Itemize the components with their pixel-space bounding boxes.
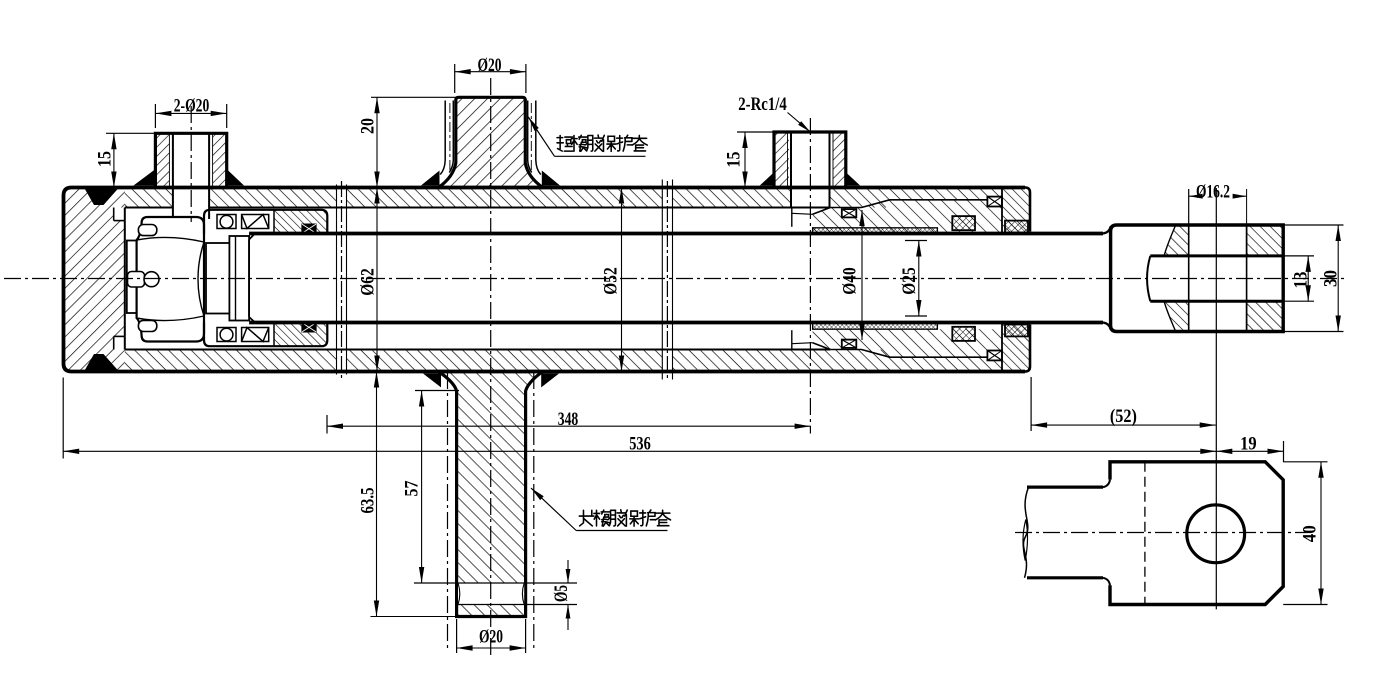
svg-text:Ø25: Ø25 xyxy=(899,267,920,295)
svg-text:15: 15 xyxy=(95,151,116,167)
svg-text:2-Rc1/4: 2-Rc1/4 xyxy=(738,94,787,115)
svg-text:2-Ø20: 2-Ø20 xyxy=(174,95,210,116)
svg-text:Ø16.2: Ø16.2 xyxy=(1196,181,1230,202)
svg-text:Ø40: Ø40 xyxy=(840,267,861,295)
svg-text:40: 40 xyxy=(1300,525,1321,542)
svg-text:Ø62: Ø62 xyxy=(358,268,379,296)
svg-text:13: 13 xyxy=(1291,272,1312,289)
svg-text:Ø20: Ø20 xyxy=(478,55,502,76)
svg-text:20: 20 xyxy=(358,118,379,134)
svg-text:30: 30 xyxy=(1321,270,1342,287)
svg-text:15: 15 xyxy=(724,152,745,168)
svg-text:Ø52: Ø52 xyxy=(601,267,622,295)
svg-text:Ø5: Ø5 xyxy=(551,585,572,602)
svg-text:348: 348 xyxy=(558,409,579,430)
svg-text:57: 57 xyxy=(402,480,423,496)
svg-text:(52): (52) xyxy=(1110,406,1137,427)
svg-text:536: 536 xyxy=(629,434,651,455)
svg-text:19: 19 xyxy=(1240,434,1257,455)
svg-text:63.5: 63.5 xyxy=(358,488,379,514)
svg-text:Ø20: Ø20 xyxy=(479,627,503,648)
